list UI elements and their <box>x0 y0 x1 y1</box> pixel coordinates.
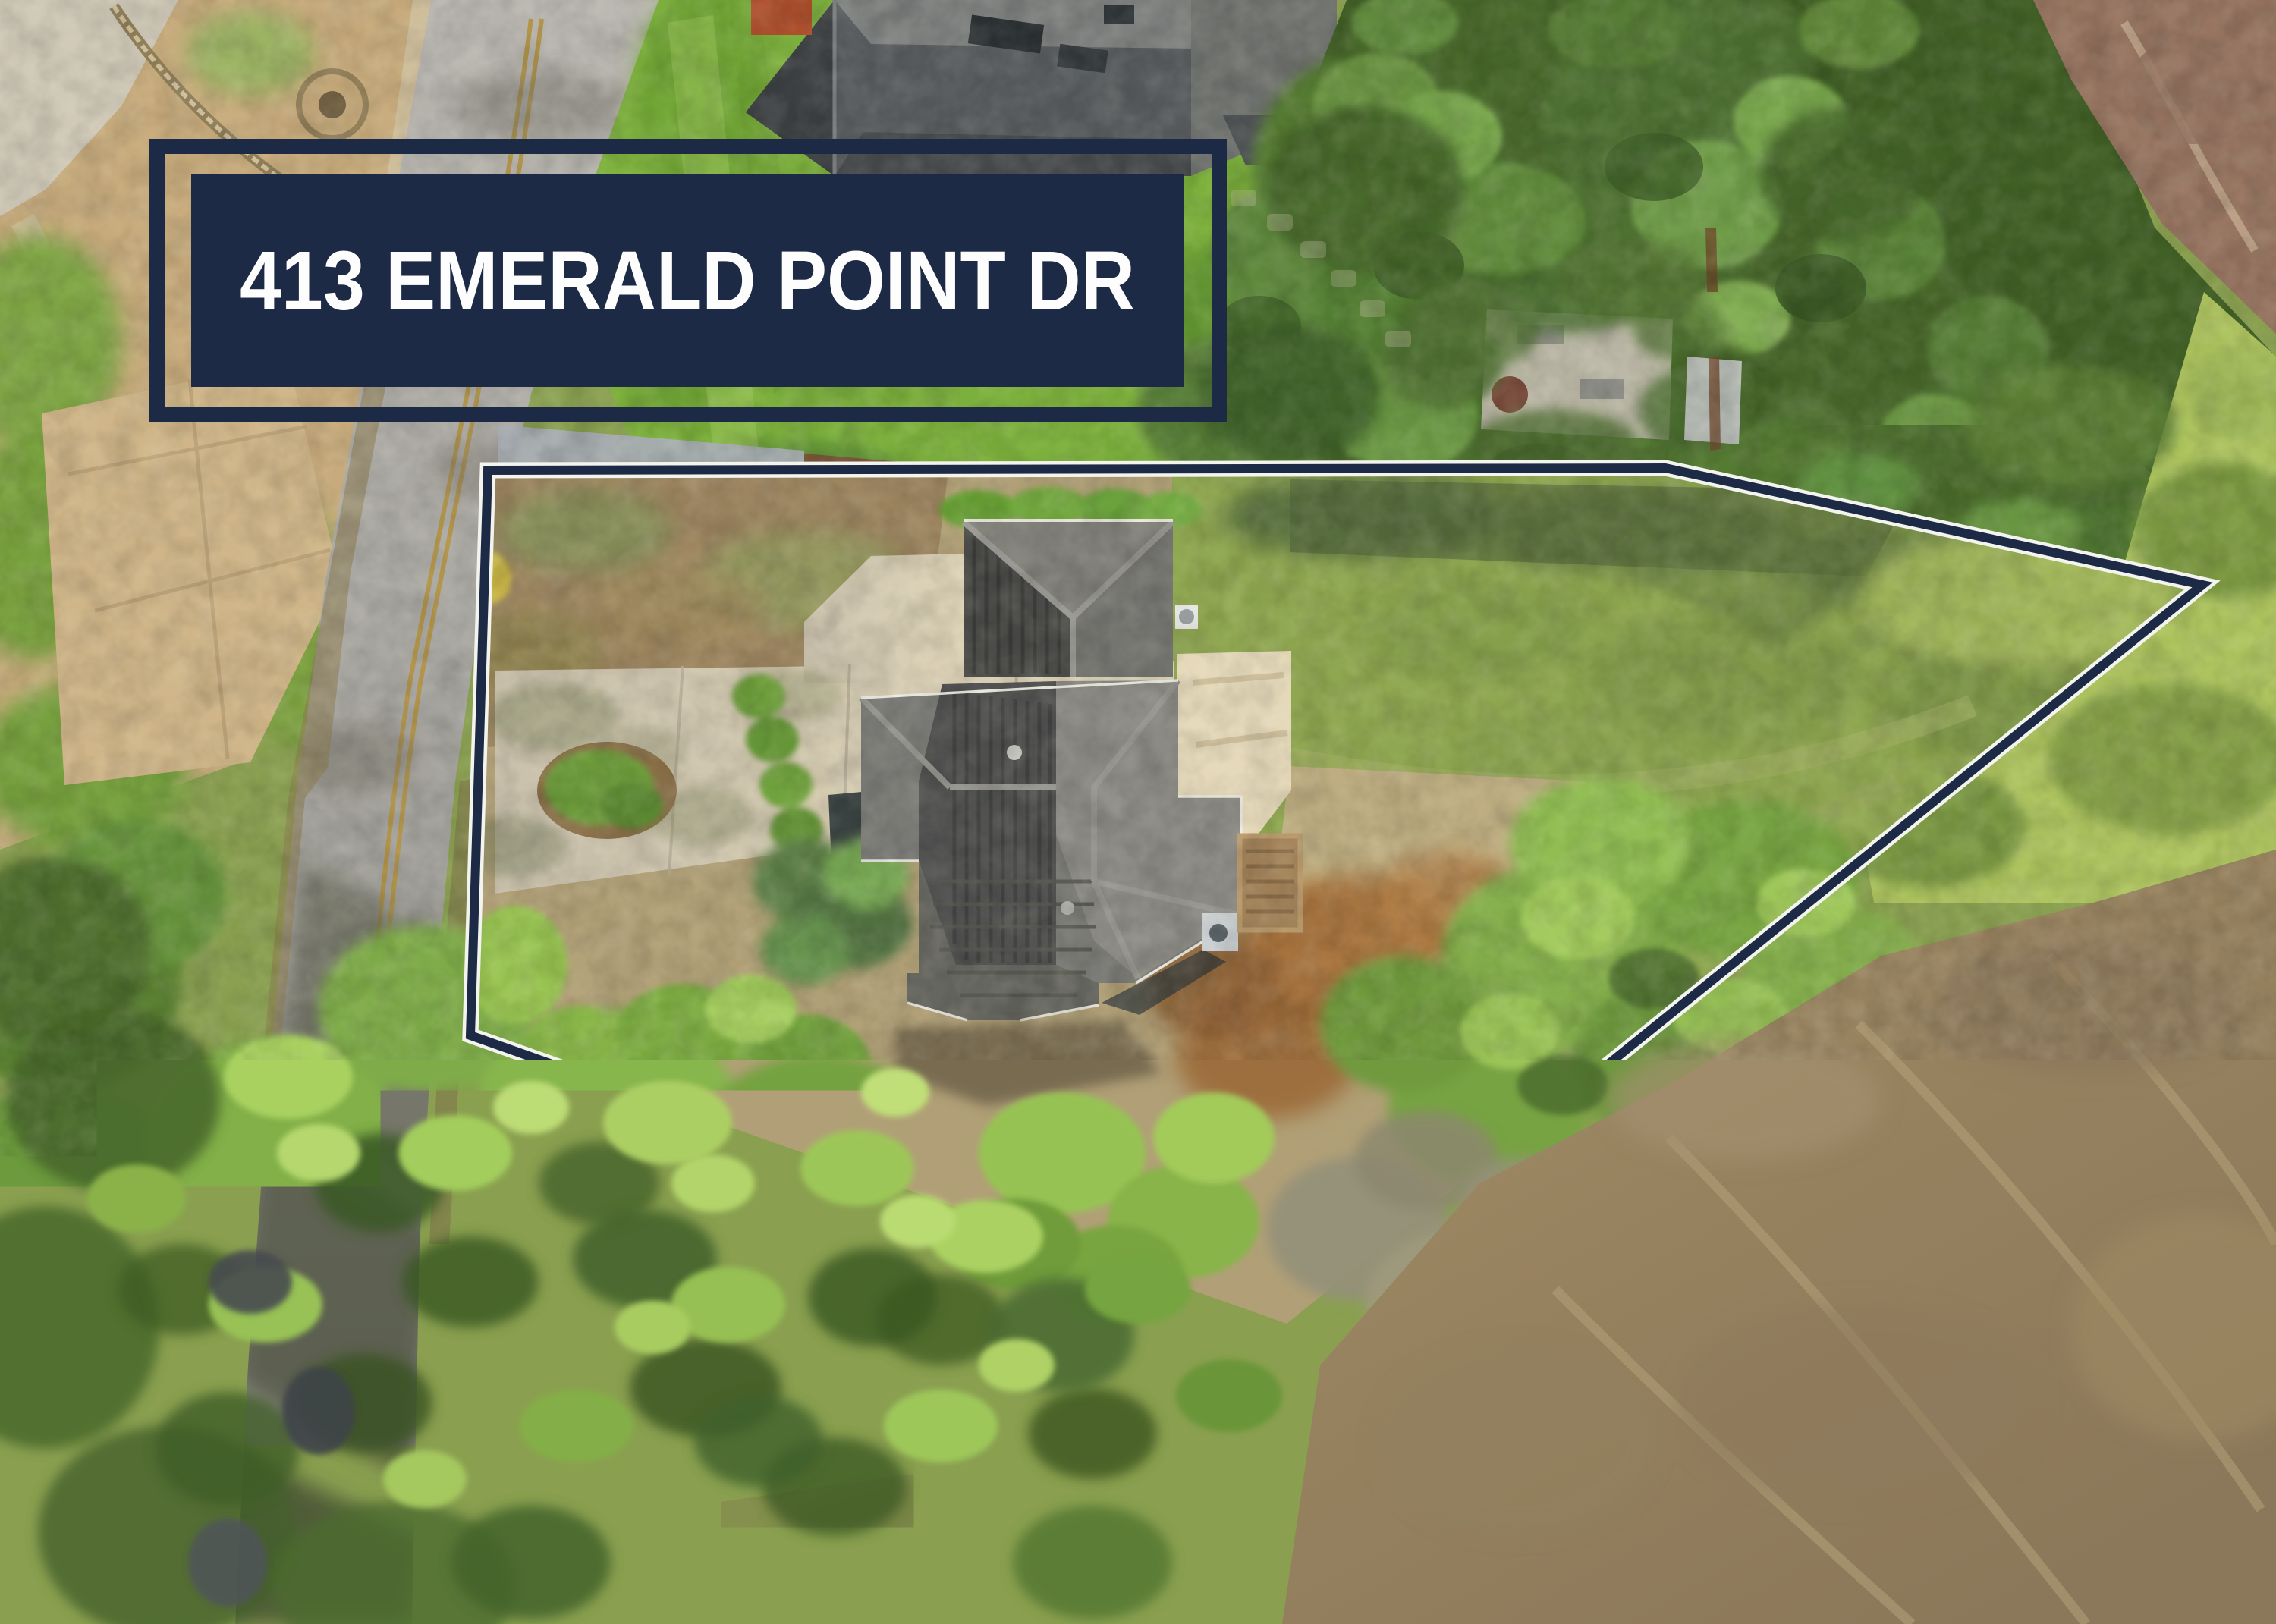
svg-text:413 EMERALD POINT DR: 413 EMERALD POINT DR <box>240 234 1135 328</box>
svg-text:.31 ACRES +/-: .31 ACRES +/- <box>1576 1386 1938 1466</box>
